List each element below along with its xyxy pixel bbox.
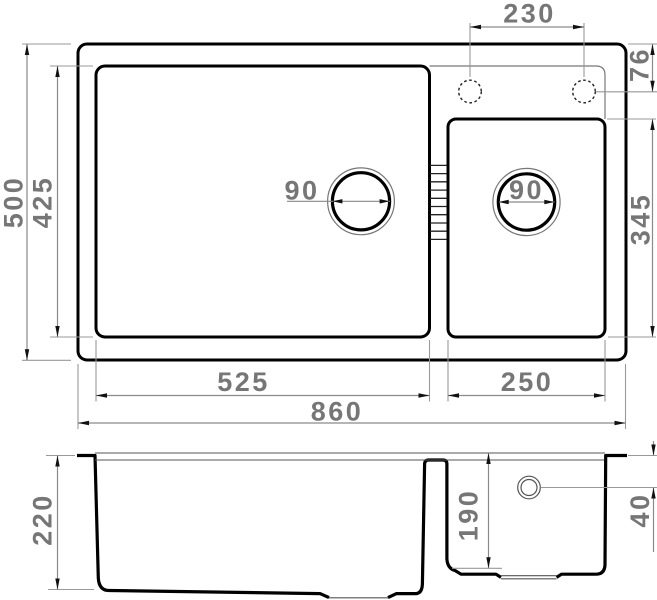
svg-text:425: 425 bbox=[27, 176, 57, 229]
svg-text:90: 90 bbox=[509, 175, 544, 205]
svg-text:250: 250 bbox=[501, 367, 554, 397]
svg-text:230: 230 bbox=[503, 0, 556, 28]
svg-text:500: 500 bbox=[0, 176, 28, 229]
svg-text:40: 40 bbox=[625, 492, 655, 527]
svg-text:76: 76 bbox=[624, 47, 654, 82]
svg-text:90: 90 bbox=[284, 176, 319, 206]
svg-text:220: 220 bbox=[27, 493, 57, 546]
svg-text:345: 345 bbox=[625, 193, 655, 246]
svg-text:860: 860 bbox=[311, 397, 364, 427]
svg-text:190: 190 bbox=[453, 489, 483, 542]
svg-text:525: 525 bbox=[217, 367, 270, 397]
